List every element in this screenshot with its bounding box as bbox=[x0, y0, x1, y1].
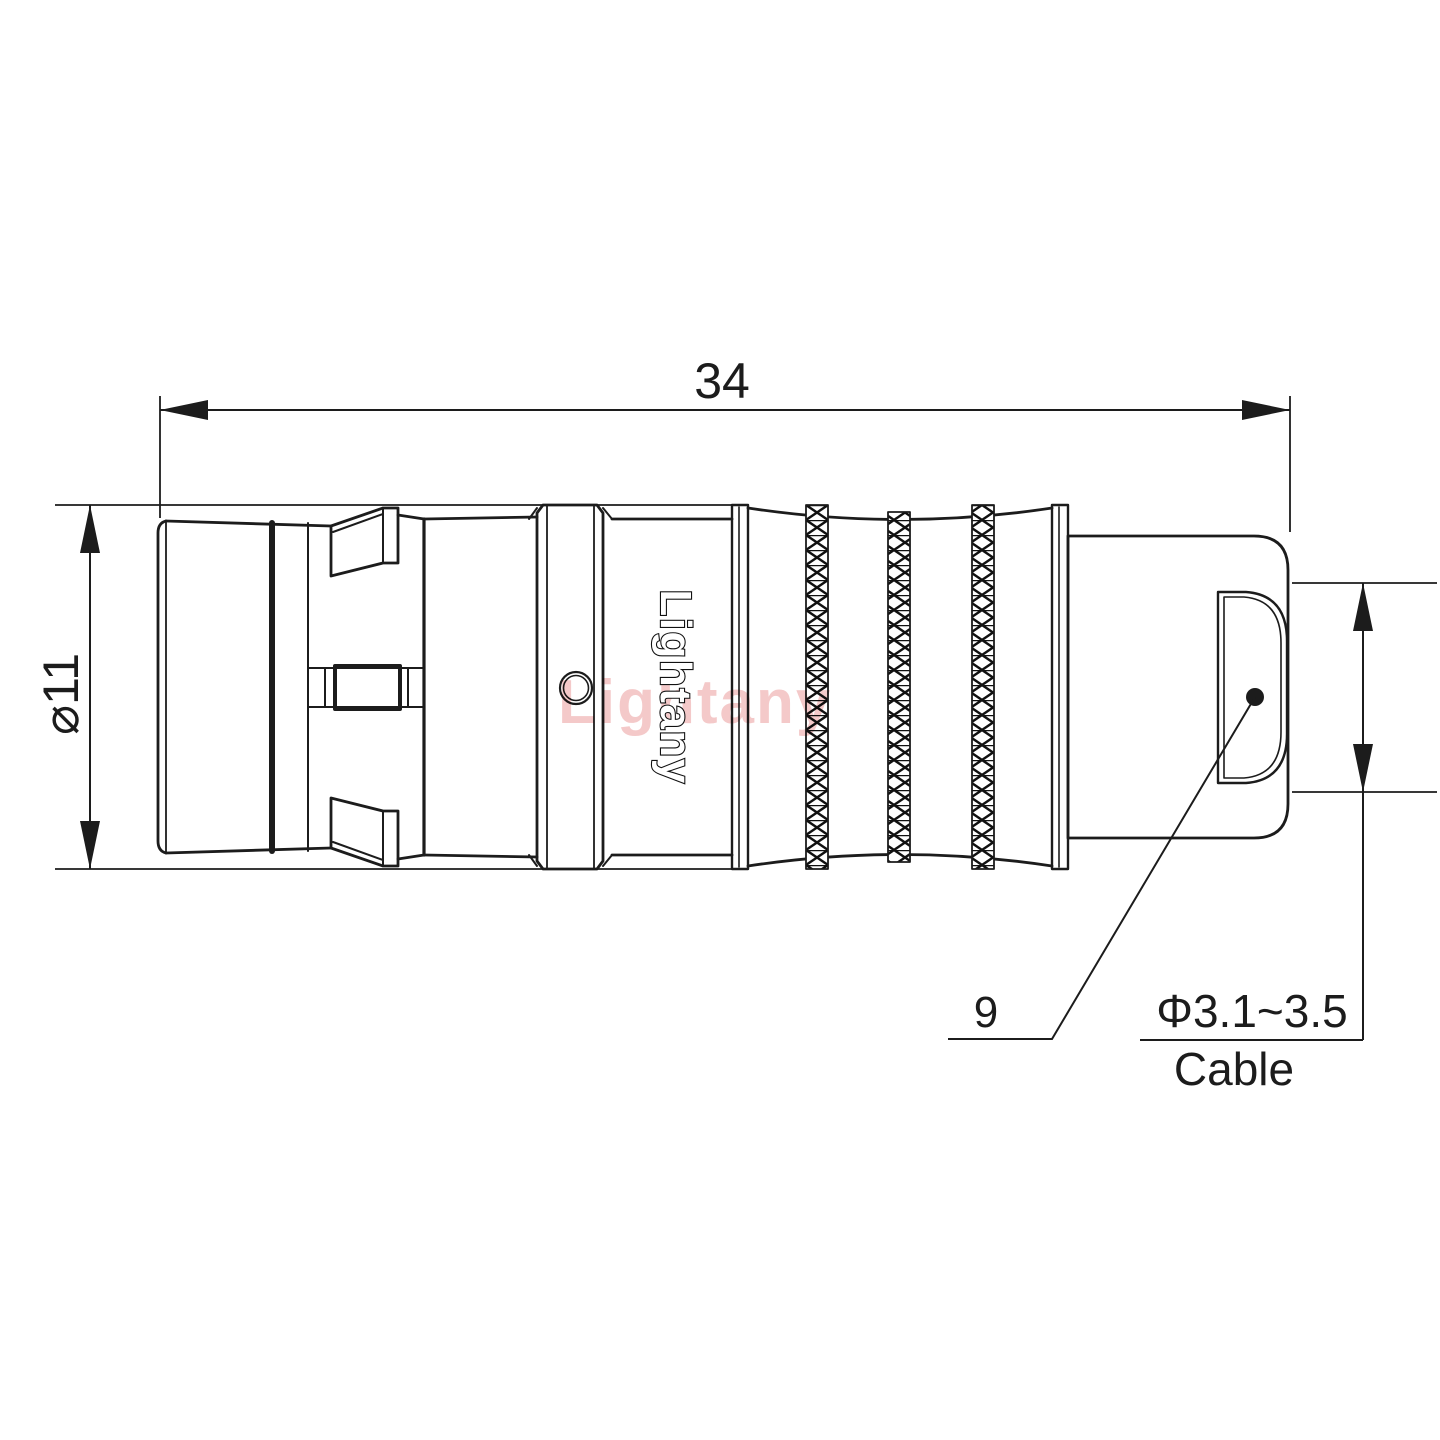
brand-barrel-text: Lightany bbox=[651, 589, 700, 784]
rear-dim-label: 9 bbox=[974, 988, 998, 1037]
arrow-down-icon bbox=[1353, 744, 1373, 792]
boot-end-inner bbox=[1224, 597, 1281, 778]
front-shell-left-cap bbox=[158, 521, 166, 853]
knurl-band-3 bbox=[972, 505, 994, 869]
front-shell bbox=[158, 508, 424, 866]
cable-word-label: Cable bbox=[1174, 1043, 1294, 1095]
step-barrel bbox=[424, 517, 537, 857]
knurl-lip-right bbox=[1052, 505, 1068, 869]
front-shell-top-edge bbox=[166, 515, 424, 526]
arrow-down-icon bbox=[80, 821, 100, 869]
arrow-right-icon bbox=[1242, 400, 1290, 420]
latch-tab-top bbox=[331, 508, 398, 576]
dim-overall-length-label: 34 bbox=[694, 353, 750, 409]
latch-tab-bottom bbox=[331, 798, 398, 866]
cable-range-label: Φ3.1~3.5 bbox=[1156, 985, 1347, 1037]
boot-end-outer bbox=[1218, 592, 1287, 783]
rear-boot bbox=[1068, 536, 1288, 838]
knurl-band-2 bbox=[888, 512, 910, 862]
arrow-up-icon bbox=[1353, 583, 1373, 631]
technical-drawing-canvas: 34 ⌀11 Φ3.1~3.5 Cable 9 Lighta bbox=[0, 0, 1440, 1440]
arrow-up-icon bbox=[80, 505, 100, 553]
guide-pin bbox=[335, 666, 400, 709]
front-shell-bottom-edge bbox=[166, 848, 424, 859]
arrow-left-icon bbox=[160, 400, 208, 420]
dim-outer-diameter-label: ⌀11 bbox=[33, 653, 89, 735]
connector-technical-drawing: 34 ⌀11 Φ3.1~3.5 Cable 9 Lighta bbox=[0, 0, 1440, 1440]
guide-channel bbox=[308, 666, 424, 709]
